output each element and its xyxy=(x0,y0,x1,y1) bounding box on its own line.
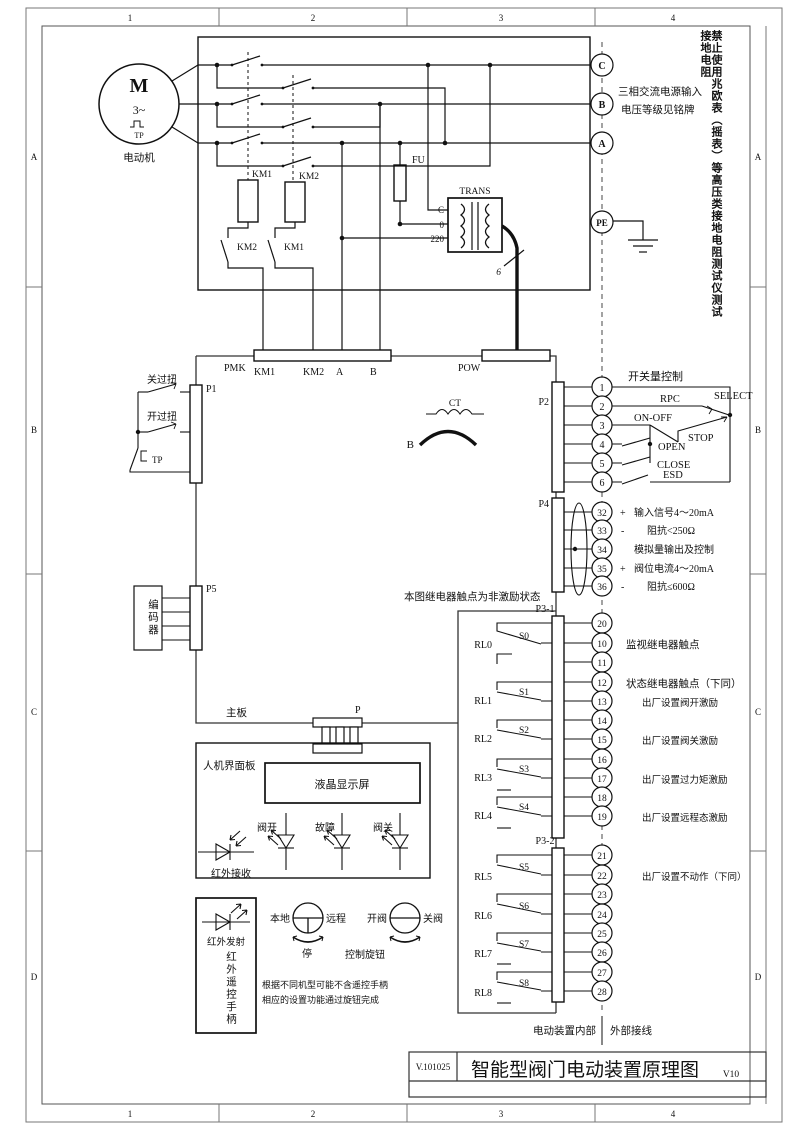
p3-2-label: P3-2 xyxy=(536,836,555,847)
knob-stop-label: 停 xyxy=(302,947,312,960)
main-board-label: 主板 xyxy=(226,706,247,719)
ct-symbol xyxy=(420,410,484,446)
p3-1-terminals: 20 10 11 12 13 14 15 16 17 18 19 xyxy=(592,613,612,826)
relay-label: RL6 xyxy=(474,911,492,922)
km1-coil-label: KM1 xyxy=(252,170,272,180)
control-knob-label: 控制旋钮 xyxy=(345,948,385,961)
col-label: 2 xyxy=(311,13,316,23)
supply-note-1: 三相交流电源输入 xyxy=(618,85,702,98)
p2-title: 开关量控制 xyxy=(628,369,683,383)
relay-label: RL0 xyxy=(474,640,492,651)
ir-remote-handle-label: 红外遥控手柄 xyxy=(217,951,235,1031)
junction-dots xyxy=(215,63,493,241)
terminal-number: 22 xyxy=(597,872,607,882)
terminal-a: A xyxy=(598,139,606,150)
row-label: B xyxy=(755,425,761,435)
km1-interlock-label: KM2 xyxy=(237,243,257,253)
select-label: SELECT xyxy=(714,391,753,402)
motor-m-label: M xyxy=(130,75,149,97)
terminal-number: 23 xyxy=(597,891,607,901)
relay-label: RL5 xyxy=(474,872,492,883)
note-open-exc: 出厂设置阀开激励 xyxy=(642,697,718,709)
km2-interlock-label: KM1 xyxy=(284,243,304,253)
col-label: 3 xyxy=(499,1109,504,1119)
p-connector xyxy=(313,718,362,753)
p3-2-terminals: 21 22 23 24 25 26 27 28 xyxy=(592,845,612,1001)
col-label: 1 xyxy=(128,1109,133,1119)
knob-remote-label: 远程 xyxy=(326,913,346,925)
terminal-number: 2 xyxy=(600,402,605,413)
terminal-number: 1 xyxy=(600,383,605,394)
transformer-label: TRANS xyxy=(459,187,490,197)
led-valve-open xyxy=(268,813,294,870)
p1-label: P1 xyxy=(206,384,217,395)
contact-label: S7 xyxy=(519,940,529,950)
terminal-number: 35 xyxy=(597,565,607,575)
schematic-page: 1 2 3 4 1 2 3 4 A B C D A B C D xyxy=(0,0,800,1131)
terminal-number: 6 xyxy=(600,478,605,489)
p4-label: P4 xyxy=(538,499,549,510)
note-monitor-relay: 监视继电器触点 xyxy=(626,638,700,651)
terminal-number: 10 xyxy=(597,640,607,650)
col-label: 4 xyxy=(671,1109,676,1119)
esd-label: ESD xyxy=(663,470,683,481)
terminal-number: 20 xyxy=(597,620,607,630)
drawing-title: 智能型阀门电动装置原理图 xyxy=(471,1059,699,1081)
ir-receive-label: 红外接收 xyxy=(211,867,251,880)
contact-label: S1 xyxy=(519,688,529,698)
terminal-number: 24 xyxy=(597,911,607,921)
relay-label: RL8 xyxy=(474,988,492,999)
onoff-label: ON-OFF xyxy=(634,413,672,424)
motor-tp-label: TP xyxy=(134,131,144,140)
note-torque-exc: 出厂设置过力矩激励 xyxy=(642,774,728,786)
p4-row-text: 阀位电流4～20mA xyxy=(634,562,715,575)
strip-label-pow: POW xyxy=(458,363,481,374)
terminal-number: 33 xyxy=(597,527,607,537)
encoder-label: 编码器 xyxy=(139,599,157,647)
p4-circuit xyxy=(552,498,592,595)
ct-phase-label: B xyxy=(407,439,414,451)
contact-label: S4 xyxy=(519,803,529,813)
strip-label-km1: KM1 xyxy=(254,367,275,378)
transformer-symbol xyxy=(448,198,502,252)
high-voltage-warning: 禁止使用兆欧表（摇表）等高压类接地电阻测试仪测试接地电阻 xyxy=(701,30,721,325)
p3-2-circuit xyxy=(497,848,592,1003)
terminal-number: 12 xyxy=(597,679,607,689)
terminal-number: 28 xyxy=(597,988,607,998)
motor-phase-label: 3~ xyxy=(133,103,146,117)
p4-terminals: 32 33 34 35 36 xyxy=(592,502,612,596)
terminal-number: 27 xyxy=(597,969,607,979)
schematic-canvas: 1 2 3 4 1 2 3 4 A B C D A B C D xyxy=(0,0,800,1131)
row-label: A xyxy=(31,152,38,162)
strip-label-km2: KM2 xyxy=(303,367,324,378)
led-open-label: 阀开 xyxy=(257,821,277,834)
p4-row-text: 阻抗≤600Ω xyxy=(647,580,695,593)
contact-label: S0 xyxy=(519,632,529,642)
terminal-number: 4 xyxy=(600,440,605,451)
trans-tap-220: 220 xyxy=(431,234,445,244)
ir-transmit-label: 红外发射 xyxy=(207,936,246,948)
terminal-number: 13 xyxy=(597,698,607,708)
pmk-strip xyxy=(254,350,391,361)
power-bus-thick xyxy=(502,226,517,350)
p3-1-connector xyxy=(552,616,564,838)
p2-label: P2 xyxy=(538,397,549,408)
wire-count-label: 6 xyxy=(496,268,501,278)
row-label: A xyxy=(755,152,762,162)
internal-label: 电动装置内部 xyxy=(533,1024,596,1037)
handle-note-1: 根据不同机型可能不含遥控手柄 xyxy=(262,979,388,990)
p2-terminals: 1 2 3 4 5 6 xyxy=(592,377,612,492)
relay-state-note: 本图继电器触点为非激励状态 xyxy=(404,590,541,603)
relay-label: RL3 xyxy=(474,773,492,784)
fuse-symbol xyxy=(394,165,406,201)
supply-note-2: 电压等级见铭牌 xyxy=(621,103,695,116)
doc-number: V.101025 xyxy=(416,1062,451,1072)
terminal-number: 5 xyxy=(600,459,605,470)
row-label: D xyxy=(31,972,38,982)
contact-label: S3 xyxy=(519,765,529,775)
trans-tap-c: C xyxy=(438,205,444,215)
p1-circuit xyxy=(130,382,202,483)
row-label: B xyxy=(31,425,37,435)
contact-label: S6 xyxy=(519,902,529,912)
row-label: D xyxy=(755,972,762,982)
p5-label: P5 xyxy=(206,584,217,595)
terminal-number: 16 xyxy=(597,756,607,766)
led-fault xyxy=(324,813,350,870)
version-label: V10 xyxy=(723,1070,740,1080)
terminal-number: 17 xyxy=(597,775,607,785)
km1-coil xyxy=(238,180,258,222)
led-valve-close xyxy=(382,813,408,870)
p3-2-connector xyxy=(552,848,564,1002)
terminal-number: 36 xyxy=(597,583,607,593)
polarity: - xyxy=(621,582,624,593)
terminal-number: 32 xyxy=(597,509,607,519)
p5-connector xyxy=(190,586,202,650)
p3-1-circuit xyxy=(497,616,592,838)
strip-label-a: A xyxy=(336,367,344,378)
terminal-number: 19 xyxy=(597,813,607,823)
pow-strip xyxy=(482,350,550,361)
close-overtorque-label: 关过扭 xyxy=(147,373,177,386)
relay-label: RL7 xyxy=(474,949,492,960)
contact-label: S2 xyxy=(519,726,529,736)
power-circuit xyxy=(99,37,591,350)
km2-coil-label: KM2 xyxy=(299,172,319,182)
polarity: + xyxy=(620,508,626,519)
p4-row-text: 阻抗<250Ω xyxy=(647,524,695,537)
trans-tap-0: 0 xyxy=(440,220,445,230)
relay-label: RL2 xyxy=(474,734,492,745)
terminal-number: 26 xyxy=(597,949,607,959)
p4-row-text: 输入信号4～20mA xyxy=(634,506,715,519)
terminal-number: 14 xyxy=(597,717,607,727)
lcd-label: 液晶显示屏 xyxy=(315,777,370,791)
p-connector-label: P xyxy=(355,705,361,716)
external-label: 外部接线 xyxy=(610,1024,652,1037)
contact-label: S8 xyxy=(519,979,529,989)
col-label: 3 xyxy=(499,13,504,23)
hmi-panel-label: 人机界面板 xyxy=(203,759,256,772)
knob-close-label: 关阀 xyxy=(423,912,443,925)
p3-1-label: P3-1 xyxy=(536,604,555,615)
p4-connector xyxy=(552,498,564,592)
terminal-number: 15 xyxy=(597,736,607,746)
col-label: 4 xyxy=(671,13,676,23)
note-close-exc: 出厂设置阀关激励 xyxy=(642,735,718,747)
col-label: 2 xyxy=(311,1109,316,1119)
led-fault-label: 故障 xyxy=(315,821,335,834)
ir-receiver-icon xyxy=(198,831,254,860)
terminal-number: 11 xyxy=(597,659,606,669)
terminal-pe: PE xyxy=(596,218,608,228)
p2-connector xyxy=(552,382,564,492)
note-no-action: 出厂设置不动作（下同） xyxy=(642,871,747,883)
led-close-label: 阀关 xyxy=(373,821,393,834)
ground-symbol xyxy=(628,240,658,252)
strip-label-b: B xyxy=(370,367,377,378)
handle-note-2: 相应的设置功能通过旋钮完成 xyxy=(262,994,379,1005)
terminal-number: 25 xyxy=(597,930,607,940)
note-status-relay: 状态继电器触点（下同） xyxy=(626,677,742,690)
ir-transmitter-icon xyxy=(202,904,250,930)
contact-label: S5 xyxy=(519,863,529,873)
tp-switch-label: TP xyxy=(152,455,163,465)
terminal-number: 3 xyxy=(600,421,605,432)
terminal-number: 34 xyxy=(597,546,607,556)
col-label: 1 xyxy=(128,13,133,23)
knob-local-label: 本地 xyxy=(270,912,290,925)
knob-selector xyxy=(293,903,323,942)
ct-label: CT xyxy=(449,399,461,409)
motor-name-label: 电动机 xyxy=(123,151,155,164)
open-label: OPEN xyxy=(658,442,686,453)
terminal-c: C xyxy=(598,61,605,72)
open-overtorque-label: 开过扭 xyxy=(147,410,177,423)
fuse-label: FU xyxy=(412,155,426,166)
knob-open-label: 开阀 xyxy=(367,912,387,925)
row-label: C xyxy=(31,707,37,717)
stop-label: STOP xyxy=(688,433,714,444)
terminal-b: B xyxy=(599,100,606,111)
rpc-label: RPC xyxy=(660,394,680,405)
knob-control xyxy=(390,903,420,942)
terminal-number: 18 xyxy=(597,794,607,804)
terminal-number: 21 xyxy=(597,852,607,862)
note-remote-exc: 出厂设置远程态激励 xyxy=(642,812,728,824)
polarity: - xyxy=(621,526,624,537)
relay-label: RL1 xyxy=(474,696,492,707)
relay-label: RL4 xyxy=(474,811,492,822)
km2-coil xyxy=(285,182,305,222)
polarity: + xyxy=(620,564,626,575)
row-label: C xyxy=(755,707,761,717)
strip-label-pmk: PMK xyxy=(224,363,246,374)
p1-connector xyxy=(190,385,202,483)
p4-row-text: 模拟量输出及控制 xyxy=(634,543,714,556)
